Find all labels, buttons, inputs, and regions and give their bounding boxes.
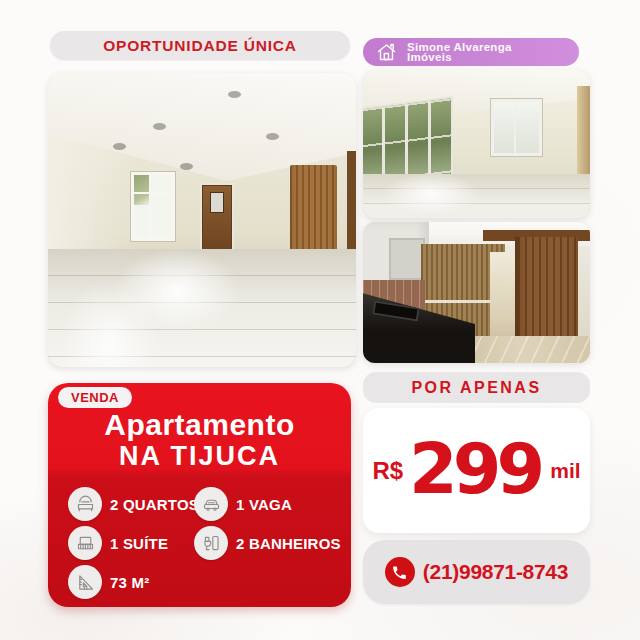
feature-label: 73 M² [110, 574, 149, 591]
feature-label: 2 BANHEIROS [236, 535, 341, 552]
price-card: R$ 299 mil [363, 408, 590, 533]
back-window [491, 99, 542, 156]
upper-cabinet [363, 222, 429, 286]
photo-living-room [48, 73, 356, 367]
price-currency: R$ [372, 457, 403, 485]
opportunity-badge-label: OPORTUNIDADE ÚNICA [103, 37, 297, 55]
photo-living-room-2 [363, 70, 590, 218]
ceiling-spotlight [153, 123, 166, 130]
feature-label: 2 QUARTOS [110, 496, 199, 513]
ceiling-spotlight [180, 163, 193, 170]
opportunity-badge: OPORTUNIDADE ÚNICA [50, 31, 350, 60]
window-band [363, 98, 451, 185]
brand-badge: Simone Alvarenga Imóveis [363, 38, 579, 66]
brand-name-line2: Imóveis [407, 52, 512, 63]
feature-label: 1 SUÍTE [110, 535, 168, 552]
wooden-door [202, 185, 232, 251]
floor-reflection [48, 249, 356, 367]
feature-bedrooms: 2 QUARTOS [68, 487, 199, 521]
house-icon [375, 40, 399, 64]
tile-floor [363, 174, 590, 218]
door-window [210, 192, 224, 213]
price-label: POR APENAS [411, 379, 541, 397]
sale-badge-label: VENDA [71, 390, 119, 405]
window-mullion [514, 102, 516, 153]
window [131, 172, 175, 241]
phone-button[interactable]: (21)99871-8743 [363, 540, 590, 604]
window-mullion [149, 175, 151, 238]
car-icon [194, 487, 228, 521]
price-label-badge: POR APENAS [363, 372, 590, 403]
feature-area: 73 M² [68, 565, 149, 599]
bed-icon [68, 487, 102, 521]
sale-badge: VENDA [58, 387, 132, 408]
window-foliage [134, 175, 150, 205]
phone-number: (21)99871-8743 [423, 560, 568, 584]
ruler-square-icon [68, 565, 102, 599]
feature-bathrooms: 2 BANHEIROS [194, 526, 341, 560]
listing-card: VENDA Apartamento NA TIJUCA 2 QUARTOS 1 … [48, 383, 351, 607]
tile-floor [48, 249, 356, 367]
price-suffix: mil [550, 459, 580, 483]
feature-parking: 1 VAGA [194, 487, 292, 521]
feature-label: 1 VAGA [236, 496, 292, 513]
feature-suite: 1 SUÍTE [68, 526, 168, 560]
brand-name: Simone Alvarenga Imóveis [407, 42, 512, 63]
price-amount: 299 [409, 434, 540, 504]
ceiling-spotlight [228, 91, 241, 98]
double-bed-icon [68, 526, 102, 560]
floor-reflection [363, 174, 590, 218]
toilet-icon [194, 526, 228, 560]
listing-title-line1: Apartamento [48, 408, 351, 442]
phone-icon [385, 557, 415, 587]
photo-kitchen [363, 222, 590, 363]
listing-title-line2: NA TIJUCA [48, 441, 351, 472]
window-mullion [134, 192, 172, 194]
cabinet-window [389, 238, 425, 280]
ceiling-spotlight [113, 143, 126, 150]
ceiling-spotlight [266, 133, 279, 140]
